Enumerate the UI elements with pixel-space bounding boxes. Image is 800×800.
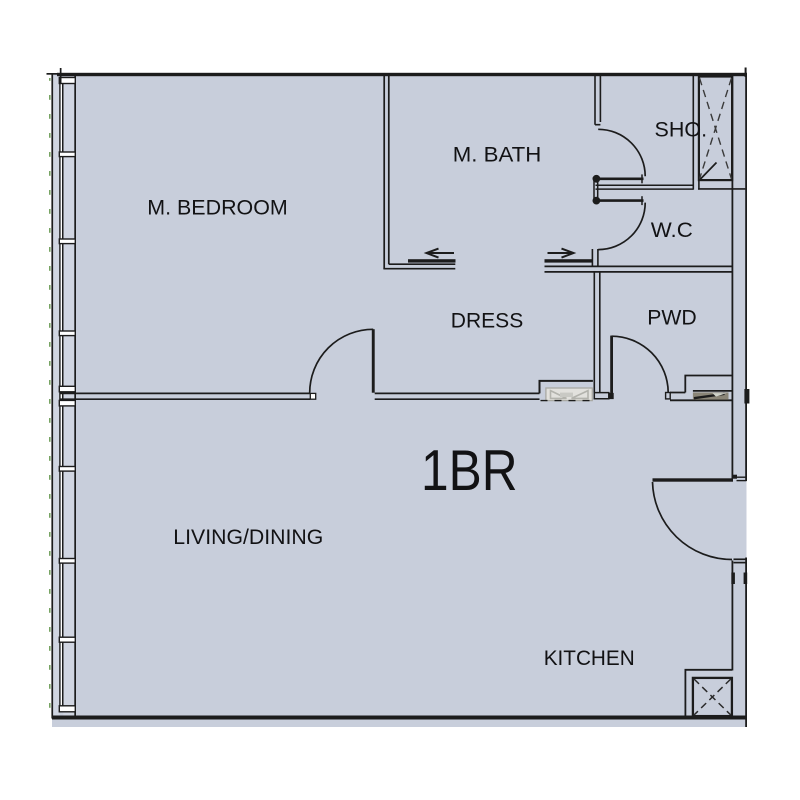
svg-text:PWD: PWD — [647, 306, 697, 330]
svg-text:SHO.: SHO. — [655, 118, 708, 142]
svg-text:KITCHEN: KITCHEN — [544, 646, 635, 670]
svg-text:LIVING/DINING: LIVING/DINING — [173, 525, 323, 549]
svg-text:W.C: W.C — [651, 218, 693, 242]
svg-text:M. BEDROOM: M. BEDROOM — [147, 196, 288, 220]
svg-text:1BR: 1BR — [421, 439, 518, 503]
svg-text:DRESS: DRESS — [451, 309, 524, 333]
svg-text:M. BATH: M. BATH — [453, 143, 542, 167]
